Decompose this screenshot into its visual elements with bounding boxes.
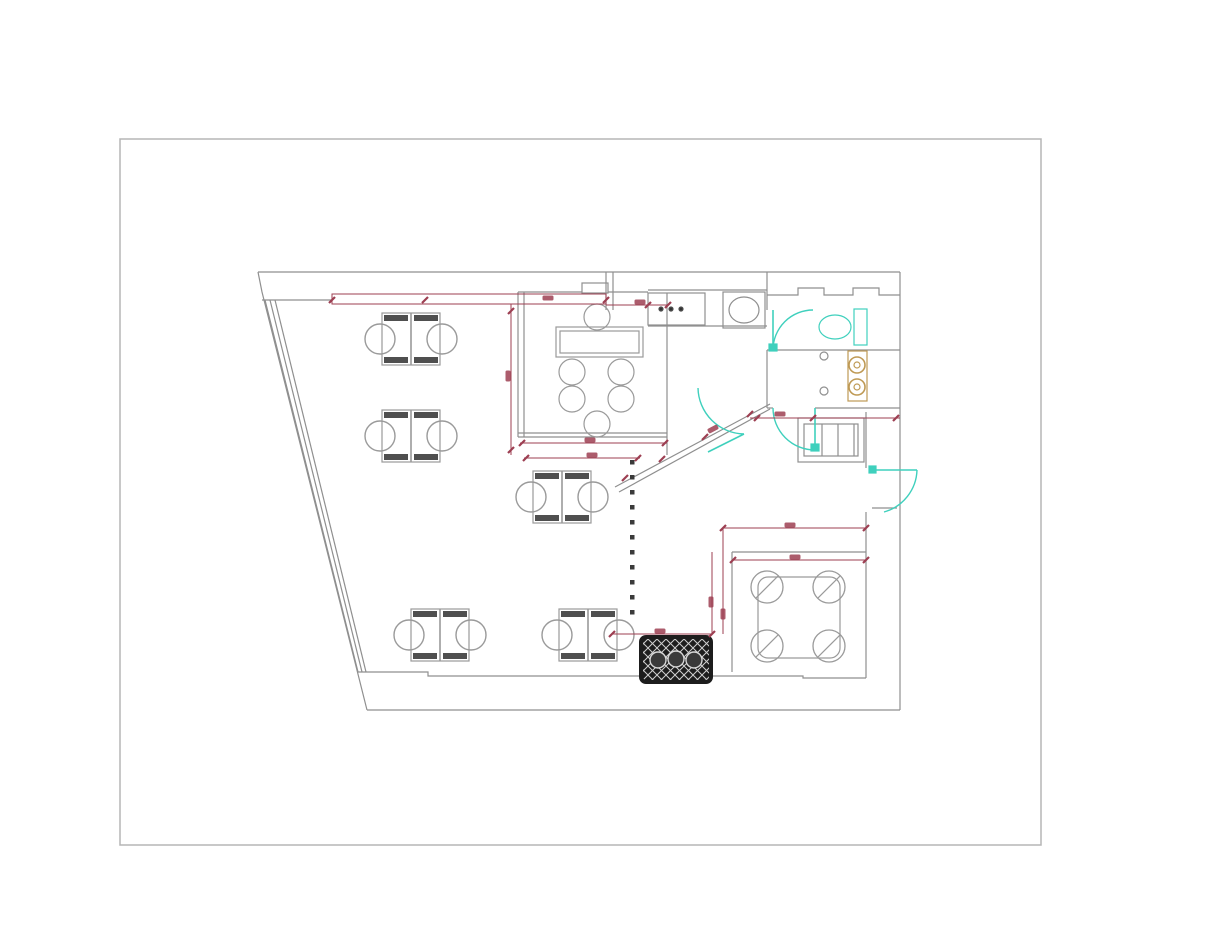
partition-dotted-line-dot <box>630 490 635 495</box>
two-seat-table-4-hatch-0 <box>413 611 437 617</box>
two-seat-table-2-hatch-1 <box>414 412 438 418</box>
partition-dotted-line-dot <box>630 565 635 570</box>
planter-box-plant-2 <box>686 652 702 668</box>
two-seat-table-5-hatch-3 <box>591 653 615 659</box>
two-seat-table-3-hatch-3 <box>565 515 589 521</box>
dim-label <box>587 453 598 458</box>
stove-burner-1 <box>659 307 663 311</box>
two-seat-table-1-hatch-2 <box>384 357 408 363</box>
two-seat-table-5-hatch-1 <box>591 611 615 617</box>
two-seat-table-3-hatch-0 <box>535 473 559 479</box>
two-seat-table-4-hatch-2 <box>413 653 437 659</box>
two-seat-table-2-hatch-0 <box>384 412 408 418</box>
partition-dotted-line-dot <box>630 595 635 600</box>
stove-burner-2 <box>669 307 673 311</box>
cad-sheet <box>0 0 1214 938</box>
two-seat-table-1-hatch-3 <box>414 357 438 363</box>
two-seat-table-4-hatch-1 <box>443 611 467 617</box>
partition-dotted-line-dot <box>630 580 635 585</box>
two-seat-table-1-hatch-0 <box>384 315 408 321</box>
two-seat-table-3-hatch-2 <box>535 515 559 521</box>
dim-label <box>775 412 786 417</box>
dim-label <box>635 300 646 305</box>
dim-label <box>785 523 796 528</box>
partition-dotted-line-dot <box>630 505 635 510</box>
door-hinge-mark-bath2 <box>811 444 819 451</box>
two-seat-table-2-hatch-3 <box>414 454 438 460</box>
two-seat-table-1-hatch-1 <box>414 315 438 321</box>
dim-label <box>790 555 801 560</box>
two-seat-table-5-hatch-0 <box>561 611 585 617</box>
dim-label <box>709 597 714 608</box>
floor-plan-canvas <box>0 0 1214 938</box>
two-seat-table-2-hatch-2 <box>384 454 408 460</box>
dim-label <box>655 629 666 634</box>
dim-label <box>585 438 596 443</box>
partition-dotted-line-dot <box>630 460 635 465</box>
partition-dotted-line-dot <box>630 610 635 615</box>
planter-box-plant-1 <box>668 651 684 667</box>
sheet-border <box>120 139 1041 845</box>
partition-dotted-line-dot <box>630 535 635 540</box>
door-hinge-mark-bath1 <box>769 344 777 351</box>
partition-dotted-line-dot <box>630 520 635 525</box>
two-seat-table-5-hatch-2 <box>561 653 585 659</box>
two-seat-table-4-hatch-3 <box>443 653 467 659</box>
partition-dotted-line-dot <box>630 550 635 555</box>
partition-dotted-line-dot <box>630 475 635 480</box>
door-hinge-mark-entrance <box>869 466 876 473</box>
stove-burner-3 <box>679 307 683 311</box>
two-seat-table-3-hatch-1 <box>565 473 589 479</box>
dim-label <box>721 609 726 620</box>
planter-box-plant-0 <box>650 652 666 668</box>
dim-label <box>506 371 511 382</box>
dim-label <box>543 296 554 301</box>
